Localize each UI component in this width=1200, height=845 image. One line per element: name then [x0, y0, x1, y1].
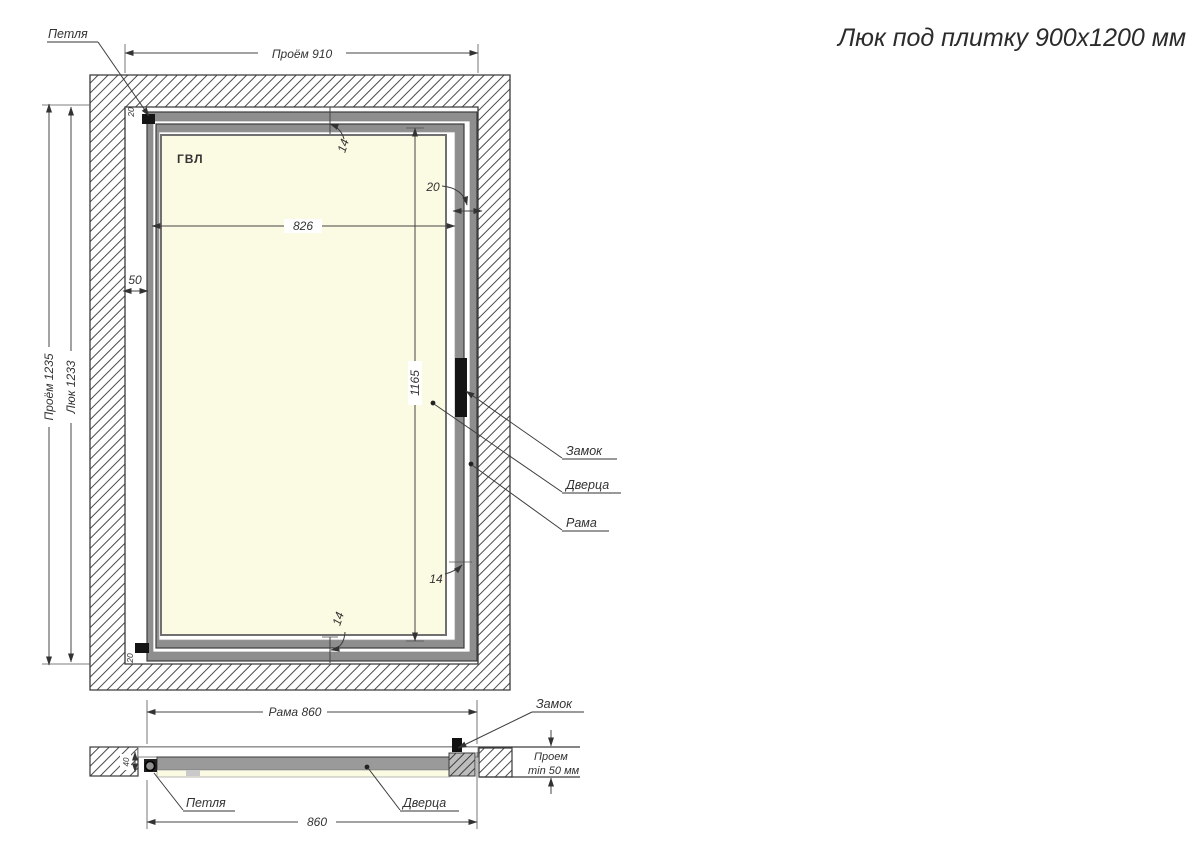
frame-label: Рама — [566, 516, 597, 530]
door-label: Дверца — [564, 478, 609, 492]
dim-side-gap: 50 — [123, 273, 148, 291]
door-section-label: Дверца — [401, 796, 446, 810]
section-view: Рама 860 40 Замок — [90, 697, 584, 829]
dim-opening-depth: Проем min 50 мм — [528, 730, 580, 794]
dim-wall-thickness-text: 40 — [122, 757, 131, 766]
wall-section-right — [479, 748, 512, 777]
dim-side-gap-text: 50 — [128, 273, 142, 287]
hinge-section-callout: Петля — [154, 773, 235, 811]
lock-section-label: Замок — [536, 697, 573, 711]
gvl-panel — [161, 135, 446, 635]
hinge-label: Петля — [48, 27, 88, 41]
panel-section-strip — [157, 770, 450, 777]
dim-margin-right-text: 14 — [429, 572, 443, 586]
lock-label: Замок — [566, 444, 603, 458]
dim-door-width-text: 860 — [307, 815, 327, 829]
dim-opening-height-text: Проём 1235 — [42, 353, 56, 420]
dim-hinge-offset-bottom: 20 — [125, 653, 135, 664]
dim-frame-width-text: Рама 860 — [269, 705, 322, 719]
dim-hatch-height: Люк 1233 — [64, 107, 78, 662]
drawing-page: Люк под плитку 900х1200 мм ГВЛ Петля Про… — [0, 0, 1200, 845]
depth-note-line2: min 50 мм — [528, 765, 580, 777]
lock-body — [455, 358, 467, 417]
frame-profile-strip — [138, 747, 478, 757]
depth-note-line1: Проем — [534, 751, 568, 763]
lock-section-hatch — [449, 753, 475, 776]
dim-opening-width: Проём 910 — [125, 44, 478, 73]
dim-panel-height-text: 1165 — [408, 370, 422, 396]
drawing-title: Люк под плитку 900х1200 мм — [836, 24, 1186, 52]
hinge-bottom — [135, 643, 149, 653]
dim-frame-depth-text: 20 — [425, 180, 440, 194]
hinge-pivot — [145, 761, 154, 770]
main-view: ГВЛ Петля Проём 910 Проём 1235 — [42, 27, 621, 690]
dim-hatch-height-text: Люк 1233 — [64, 360, 78, 414]
lock-section-latch — [452, 738, 462, 752]
dim-hinge-offset-bottom-text: 20 — [125, 653, 135, 664]
dim-frame-width: Рама 860 — [147, 700, 477, 744]
material-label: ГВЛ — [177, 152, 204, 166]
hinge-section-label: Петля — [186, 796, 226, 810]
dim-opening-width-text: Проём 910 — [272, 47, 333, 61]
door-section-bar — [157, 757, 450, 770]
dim-hinge-offset-top: 20 — [126, 107, 136, 118]
hatch-drawing-svg: Люк под плитку 900х1200 мм ГВЛ Петля Про… — [0, 0, 1200, 845]
panel-stamp — [186, 770, 200, 776]
dim-panel-width-text: 826 — [293, 219, 313, 233]
dim-hinge-offset-top-text: 20 — [126, 107, 136, 118]
